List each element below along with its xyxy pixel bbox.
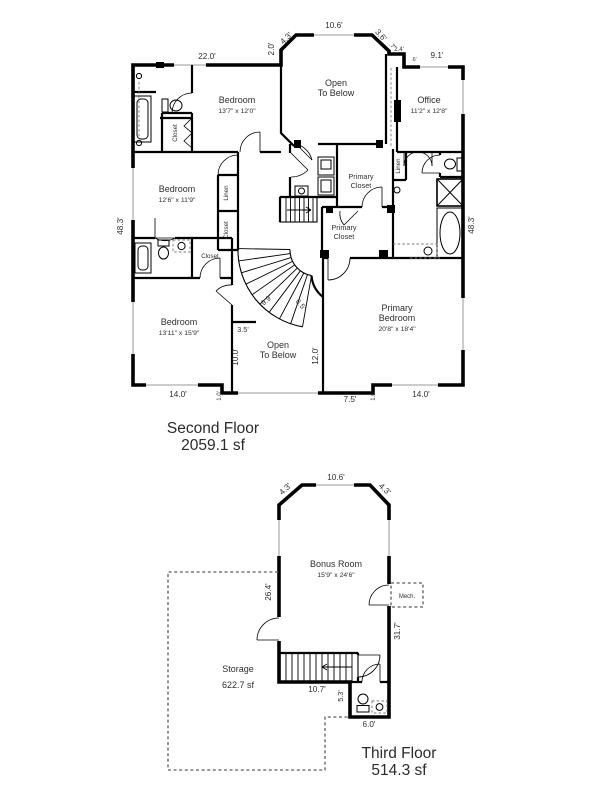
room-label-primary-closet-1b: Closet bbox=[351, 181, 372, 190]
dim-label: 9.1' bbox=[431, 51, 444, 60]
room-label-closet: Closet bbox=[172, 124, 179, 142]
room-area-storage: 622.7 sf bbox=[222, 680, 255, 690]
room-label-primary-closet-2: Primary bbox=[331, 223, 356, 232]
dim-label: 10.0' bbox=[231, 348, 240, 366]
room-dims-bedroom-1: 13'7" x 12'0" bbox=[218, 108, 256, 115]
room-label-primary-bedroom: Primary bbox=[382, 303, 413, 313]
room-label-bedroom-3: Bedroom bbox=[161, 317, 198, 327]
dim-label: 48.3' bbox=[116, 217, 125, 235]
third-floor-plan: 10.6' 4.3' 4.3' 26.4' 31.7' Bonus Room 1… bbox=[168, 473, 436, 779]
dim-label: 1.0' bbox=[217, 391, 223, 401]
sink-icon bbox=[424, 247, 432, 255]
dim-label: 1.0' bbox=[371, 391, 377, 401]
room-dims-primary-bedroom: 20'8" x 18'4" bbox=[378, 326, 416, 333]
floor-plan-svg: 22.0' 2.0' 4.3' 10.6' 3.6' .7' 2.4' .6' … bbox=[0, 0, 600, 800]
floor-title-third: Third Floor bbox=[362, 745, 437, 762]
room-dims-bedroom-3: 13'11" x 15'9" bbox=[159, 330, 200, 337]
dim-label: 22.0' bbox=[198, 52, 216, 61]
floor-area-third: 514.3 sf bbox=[371, 762, 427, 779]
dim-label: 3.5' bbox=[237, 325, 249, 334]
dim-label: 26.4' bbox=[264, 583, 273, 601]
room-label-linen: Linen bbox=[395, 158, 402, 174]
second-floor-interior-walls bbox=[133, 54, 463, 393]
room-label-closet: Closet bbox=[201, 253, 219, 260]
room-label-primary-bedroom-2: Bedroom bbox=[379, 313, 416, 323]
floor-area-second: 2059.1 sf bbox=[181, 437, 245, 454]
room-label-bonus-room: Bonus Room bbox=[310, 559, 362, 569]
dim-label: 7.5' bbox=[344, 395, 357, 404]
third-floor-interior-walls bbox=[280, 653, 389, 682]
sink-icon bbox=[178, 242, 185, 249]
second-floor-windows bbox=[131, 33, 465, 395]
room-label-bedroom-1: Bedroom bbox=[219, 95, 256, 105]
room-label-storage: Storage bbox=[222, 664, 254, 674]
room-label-linen: Linen bbox=[223, 185, 230, 201]
dim-label: 10.6' bbox=[325, 21, 343, 30]
floor-plan-page: 22.0' 2.0' 4.3' 10.6' 3.6' .7' 2.4' .6' … bbox=[0, 0, 600, 800]
room-label-primary-closet-2b: Closet bbox=[334, 232, 355, 241]
room-label-mech: Mech. bbox=[399, 594, 416, 600]
bathtub-icon bbox=[437, 208, 463, 258]
dim-label: 3.6' bbox=[373, 27, 389, 43]
second-floor-fixtures bbox=[134, 68, 463, 273]
room-label-open-to-below-upper-2: To Below bbox=[318, 88, 355, 98]
wall-light-icon bbox=[136, 73, 141, 78]
second-floor-labels: 22.0' 2.0' 4.3' 10.6' 3.6' .7' 2.4' .6' … bbox=[116, 21, 476, 454]
floor-title-second: Second Floor bbox=[167, 420, 259, 437]
room-label-open-to-below-upper: Open bbox=[325, 78, 347, 88]
room-dims-office: 11'2" x 12'8" bbox=[411, 108, 448, 115]
wall-light-icon bbox=[136, 140, 141, 145]
room-dims-bonus-room: 15'9" x 24'6" bbox=[317, 572, 355, 579]
room-label-open-to-below-lower: Open bbox=[267, 340, 289, 350]
room-label-open-to-below-lower-2: To Below bbox=[260, 350, 297, 360]
room-label-primary-closet-1: Primary bbox=[348, 172, 373, 181]
vanity-icon bbox=[173, 240, 190, 252]
room-label-bedroom-2: Bedroom bbox=[159, 184, 196, 194]
dim-label: .6' bbox=[411, 57, 416, 63]
dim-label: 14.0' bbox=[169, 390, 187, 399]
storage-dashed-outline bbox=[168, 572, 350, 770]
dim-label: 2.0' bbox=[267, 42, 276, 55]
dim-label: 4.3' bbox=[278, 30, 294, 46]
bathtub-icon bbox=[135, 243, 151, 273]
toilet-icon bbox=[358, 694, 368, 704]
sink-icon bbox=[376, 704, 383, 711]
dim-label: 12.0' bbox=[311, 347, 320, 365]
dim-label: 5.3' bbox=[336, 690, 345, 702]
third-floor-stairs bbox=[280, 653, 358, 682]
dim-label: 14.0' bbox=[412, 390, 430, 399]
vanity-icon bbox=[372, 701, 387, 713]
third-floor-labels: 10.6' 4.3' 4.3' 26.4' 31.7' Bonus Room 1… bbox=[222, 473, 436, 779]
second-floor-exterior-walls bbox=[133, 35, 463, 393]
dim-label: 48.3' bbox=[467, 216, 476, 234]
dim-label: 6.5' bbox=[294, 297, 309, 312]
room-dims-bedroom-2: 12'6" x 11'9" bbox=[159, 197, 196, 204]
dim-label: 31.7' bbox=[393, 622, 402, 640]
room-label-office: Office bbox=[417, 95, 440, 105]
toilet-icon bbox=[162, 99, 168, 112]
dim-label: 2.4' bbox=[394, 47, 404, 53]
wall-light-icon bbox=[394, 187, 400, 193]
room-label-closet: Closet bbox=[223, 221, 230, 239]
dim-label: 6.0' bbox=[363, 720, 376, 729]
dim-label: 10.6' bbox=[327, 473, 345, 482]
dim-label: 10.7' bbox=[308, 685, 326, 694]
second-floor-plan: 22.0' 2.0' 4.3' 10.6' 3.6' .7' 2.4' .6' … bbox=[116, 21, 476, 454]
